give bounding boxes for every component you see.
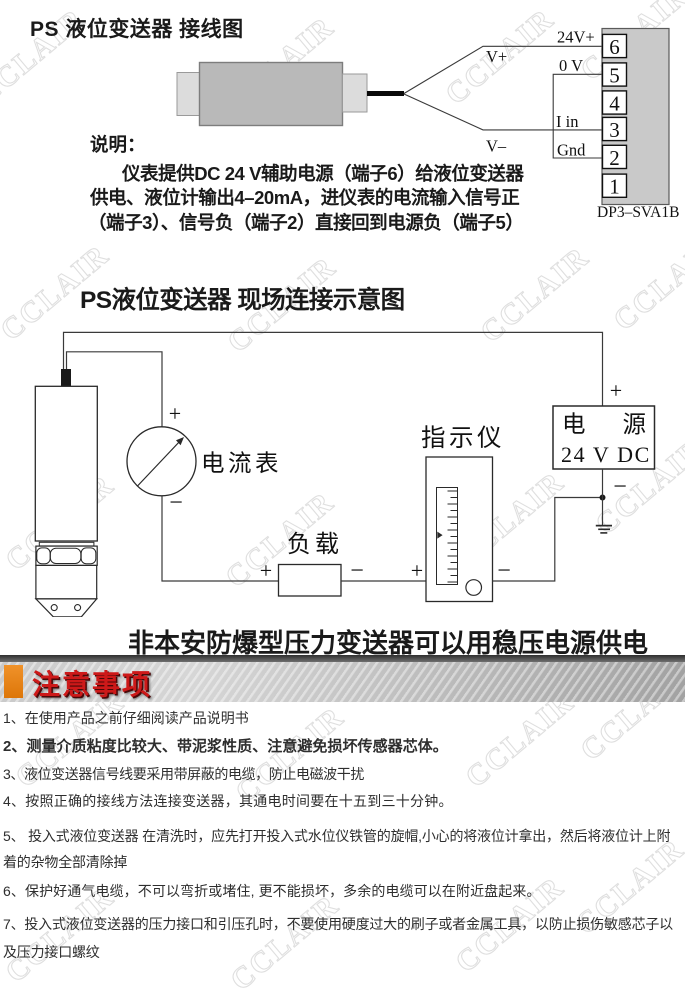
svg-text:指示仪: 指示仪 xyxy=(421,424,505,452)
svg-text:+: + xyxy=(169,401,181,426)
svg-text:−: − xyxy=(613,474,627,500)
svg-text:Gnd: Gnd xyxy=(557,141,586,160)
svg-text:24V+: 24V+ xyxy=(557,28,595,47)
svg-text:V+: V+ xyxy=(486,47,507,66)
svg-text:−: − xyxy=(169,490,183,516)
svg-text:6: 6 xyxy=(609,35,620,59)
svg-text:负载: 负载 xyxy=(287,531,343,558)
svg-text:3: 3 xyxy=(609,118,620,142)
svg-text:+: + xyxy=(260,558,272,583)
svg-text:24 V DC: 24 V DC xyxy=(561,442,651,467)
svg-text:2: 2 xyxy=(609,146,620,170)
svg-text:+: + xyxy=(411,558,423,583)
svg-text:V–: V– xyxy=(486,137,507,156)
svg-text:1: 1 xyxy=(609,175,620,199)
svg-text:−: − xyxy=(497,558,511,584)
svg-text:DP3–SVA1B: DP3–SVA1B xyxy=(597,204,679,221)
svg-text:−: − xyxy=(350,558,364,584)
svg-text:电流表: 电流表 xyxy=(201,450,282,477)
svg-text:+: + xyxy=(610,378,622,403)
svg-text:4: 4 xyxy=(609,92,620,116)
svg-text:5: 5 xyxy=(609,64,620,88)
svg-text:I in: I in xyxy=(556,112,578,131)
svg-text:0 V: 0 V xyxy=(559,56,583,75)
